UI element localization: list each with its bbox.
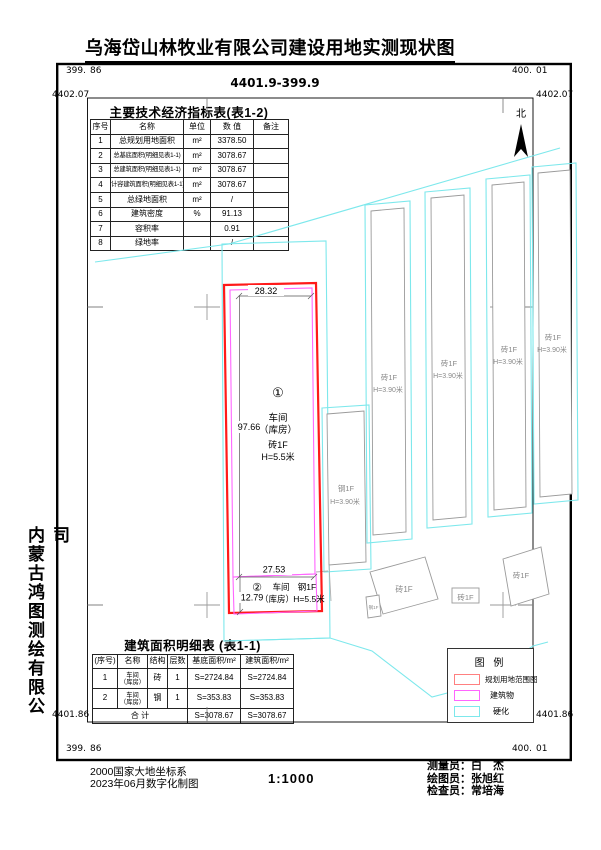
neighbor-strip4	[538, 170, 572, 497]
col-header: 备注	[254, 120, 289, 135]
checker-label: 检查员：	[427, 785, 471, 797]
dim-width-plot2: 27.53	[263, 565, 286, 575]
hardened-outline-strip3	[486, 175, 532, 517]
cell: 7	[91, 222, 111, 237]
cell: 总规划用地面积	[111, 134, 184, 149]
surveyor-row: 测量员：白 杰	[427, 760, 504, 773]
table-row: 1 总规划用地面积 m² 3378.50	[91, 134, 289, 149]
checker-row: 检查员：常培海	[427, 785, 504, 798]
cell: 总基底面积(明细见表1-1)	[111, 149, 184, 164]
legend-title: 图 例	[448, 654, 533, 669]
building-swatch-icon	[454, 690, 480, 701]
neighbor-steel-building	[327, 411, 366, 565]
coord-bottom-right-x-dec: 01	[536, 744, 547, 754]
cell: /	[211, 192, 254, 207]
boundary-swatch-icon	[454, 674, 480, 685]
cell	[254, 192, 289, 207]
col-header: (序号)	[93, 655, 118, 669]
cell: 91.13	[211, 207, 254, 222]
col-header: 建筑面积/m²	[241, 655, 294, 669]
coord-top-left-x-dec: 86	[90, 66, 101, 76]
cell: m²	[184, 149, 211, 164]
legend-item-building: 建筑物	[454, 690, 533, 701]
table-row: 8 绿地率 /	[91, 236, 289, 251]
cell: m²	[184, 134, 211, 149]
cell: S=2724.84	[241, 669, 294, 689]
digitized-line: 2023年06月数字化制图	[90, 778, 199, 790]
strip3-height: H=3.90米	[493, 357, 523, 366]
total-label: 合 计	[93, 709, 188, 724]
drafter-row: 绘图员：张旭红	[427, 773, 504, 786]
indicator-table: 序号 名称 单位 数 值 备注 1 总规划用地面积 m² 3378.50 2 总…	[90, 119, 289, 251]
col-header: 层数	[168, 655, 188, 669]
company-name: 内蒙古鸿图测绘有限公司	[22, 526, 72, 726]
cell: 3078.67	[211, 163, 254, 178]
cell	[184, 222, 211, 237]
col-header: 单位	[184, 120, 211, 135]
plot1-height: H=5.5米	[261, 451, 294, 462]
tiny-building-label: 钢1F	[369, 604, 379, 611]
coord-top-left-y: 4402.07	[52, 90, 86, 100]
mask	[232, 421, 267, 433]
legend-item-label: 规划用地范围图	[485, 674, 538, 685]
col-header: 名称	[118, 655, 148, 669]
building-name: 车间	[118, 672, 147, 679]
cell: 1	[168, 689, 188, 709]
col-header: 基底面积/m²	[188, 655, 241, 669]
cell: 3078.67	[211, 178, 254, 193]
plot2-name: 车间	[272, 582, 289, 592]
coord-bottom-right-y: 4401.86	[536, 710, 573, 720]
neighbor-small-box	[452, 588, 479, 603]
strip1-height: H=3.90米	[373, 385, 403, 394]
table-row: 合 计 S=3078.67 S=3078.67	[93, 709, 294, 724]
cell	[254, 134, 289, 149]
strip3-label: 砖1F	[501, 344, 518, 354]
table-row: 4 计容建筑面积(明细见表1-1) m² 3078.67	[91, 178, 289, 193]
cell: 砖	[148, 669, 168, 689]
cell: 3078.67	[211, 149, 254, 164]
dim-line-top	[236, 293, 314, 299]
cell: 容积率	[111, 222, 184, 237]
cell: 2	[93, 689, 118, 709]
cell: 钢	[148, 689, 168, 709]
staff-block: 测量员：白 杰 绘图员：张旭红 检查员：常培海	[427, 760, 504, 798]
neighbor-labels: 砖1F H=3.90米 砖1F H=3.90米 砖1F H=3.90米 砖1F …	[330, 332, 567, 611]
neighbor-buildings	[316, 170, 572, 618]
right-quad-label: 砖1F	[513, 570, 530, 580]
fence-lines	[316, 565, 331, 601]
mask	[235, 592, 270, 603]
sheet-number: 4401.9-399.9	[180, 76, 370, 90]
cell: S=353.83	[188, 689, 241, 709]
area-table-title: 建筑面积明细表 (表1-1)	[92, 635, 293, 654]
cell	[254, 222, 289, 237]
neighbor-square-building	[370, 557, 438, 614]
north-arrow-icon	[514, 124, 528, 157]
coord-bottom-left-x-int: 399.	[58, 744, 86, 754]
dim-height-plot1: 97.66	[238, 422, 261, 432]
plot2-name2: （库房）	[260, 594, 294, 604]
cell	[254, 207, 289, 222]
cell: m²	[184, 192, 211, 207]
square-label: 砖1F	[395, 584, 412, 594]
cell: 车间 （库房）	[118, 669, 148, 689]
building-name2: （库房）	[118, 699, 147, 706]
dimension-lines	[236, 293, 317, 615]
neighbor-right-building	[503, 547, 549, 606]
hardened-outline-strip1	[365, 201, 412, 543]
hardened-outline-steel	[322, 405, 371, 572]
table-row: 6 建筑密度 % 91.13	[91, 207, 289, 222]
dim-height-plot2: 12.79	[241, 593, 264, 603]
coord-top-right-y: 4402.07	[536, 90, 573, 100]
cell: 绿地率	[111, 236, 184, 251]
neighbor-strip2	[431, 195, 466, 520]
total-floor-area: S=3078.67	[241, 709, 294, 724]
north-label: 北	[516, 108, 526, 120]
coord-top-left-x-int: 399.	[58, 66, 86, 76]
building-name2: （库房）	[118, 679, 147, 686]
table-row: 1 车间 （库房） 砖 1 S=2724.84 S=2724.84	[93, 669, 294, 689]
plot2-height: H=5.5米	[293, 594, 325, 604]
cell: 4	[91, 178, 111, 193]
planning-boundary	[224, 283, 322, 613]
coord-bottom-left-x-dec: 86	[90, 744, 101, 754]
cell: 6	[91, 207, 111, 222]
coord-top-right-x-int: 400.	[505, 66, 532, 76]
dimension-text-masks	[232, 285, 292, 603]
strip4-label: 砖1F	[545, 332, 562, 342]
plot1-name: 车间	[268, 412, 287, 424]
hardened-swatch-icon	[454, 706, 480, 717]
cell	[254, 178, 289, 193]
table-row: (序号) 名称 结构 层数 基底面积/m² 建筑面积/m²	[93, 655, 294, 669]
cell: 1	[91, 134, 111, 149]
cell	[254, 149, 289, 164]
legend-item-label: 建筑物	[490, 690, 514, 701]
survey-map-sheet: 乌海岱山林牧业有限公司建设用地实测现状图 4401.9-399.9 399. 8…	[0, 0, 601, 850]
plot1-name2: （库房）	[259, 424, 297, 436]
table-row: 序号 名称 单位 数 值 备注	[91, 120, 289, 135]
coord-top-right-x-dec: 01	[536, 66, 547, 76]
table-row: 5 总绿地面积 m² /	[91, 192, 289, 207]
total-base-area: S=3078.67	[188, 709, 241, 724]
cell: 3	[91, 163, 111, 178]
building-name: 车间	[118, 692, 147, 699]
dim-line-plot2-left	[237, 577, 243, 615]
cell: m²	[184, 178, 211, 193]
hardened-outline-around-plot	[222, 241, 330, 641]
mask	[256, 564, 292, 575]
col-header: 结构	[148, 655, 168, 669]
table-row: 3 总建筑面积(明细见表1-1) m² 3078.67	[91, 163, 289, 178]
cell: S=353.83	[241, 689, 294, 709]
cell: 总建筑面积(明细见表1-1)	[111, 163, 184, 178]
table-row: 7 容积率 0.91	[91, 222, 289, 237]
cell: 车间 （库房）	[118, 689, 148, 709]
strip2-height: H=3.90米	[433, 371, 463, 380]
checker-name: 常培海	[471, 785, 504, 797]
surveyor-label: 测量员：	[427, 760, 471, 772]
cell: 3378.50	[211, 134, 254, 149]
plot1-building-outline	[230, 288, 315, 577]
cell: /	[211, 236, 254, 251]
cell	[254, 236, 289, 251]
cell	[184, 236, 211, 251]
cell: 8	[91, 236, 111, 251]
plot2-building-outline	[233, 574, 317, 614]
steel-height: H=3.90米	[330, 497, 360, 506]
cell: 1	[168, 669, 188, 689]
col-header: 数 值	[211, 120, 254, 135]
cell: S=2724.84	[188, 669, 241, 689]
dim-width-plot1: 28.32	[255, 286, 278, 296]
table-row: 2 总基底面积(明细见表1-1) m² 3078.67	[91, 149, 289, 164]
neighbor-strip3	[492, 182, 526, 510]
cell: 0.91	[211, 222, 254, 237]
coordinate-system-note: 2000国家大地坐标系 2023年06月数字化制图	[90, 766, 199, 790]
table-row: 2 车间 （库房） 钢 1 S=353.83 S=353.83	[93, 689, 294, 709]
strip2-label: 砖1F	[441, 358, 458, 368]
cell	[254, 163, 289, 178]
col-header: 名称	[111, 120, 184, 135]
plot2-structure: 钢1F	[298, 582, 316, 592]
area-table: (序号) 名称 结构 层数 基底面积/m² 建筑面积/m² 1 车间 （库房） …	[92, 654, 294, 724]
small-box-label: 砖1F	[457, 592, 474, 602]
drafter-name: 张旭红	[471, 773, 504, 785]
datum-line: 2000国家大地坐标系	[90, 766, 199, 778]
cell: 计容建筑面积(明细见表1-1)	[111, 178, 184, 193]
plot-labels: 28.32 97.66 27.53 12.79 ① 车间 （库房） 砖1F H=…	[238, 286, 325, 604]
grid-crosses	[194, 294, 516, 618]
map-scale: 1:1000	[268, 771, 314, 786]
hardened-outline-strip2	[425, 188, 472, 528]
plot1-structure: 砖1F	[268, 439, 288, 450]
page-title-text: 乌海岱山林牧业有限公司建设用地实测现状图	[85, 34, 455, 63]
cell: 2	[91, 149, 111, 164]
hardened-outline-strip4	[532, 163, 578, 504]
surveyor-name: 白 杰	[471, 760, 504, 772]
page-title: 乌海岱山林牧业有限公司建设用地实测现状图	[40, 34, 500, 63]
mask	[248, 285, 284, 296]
cell: 5	[91, 192, 111, 207]
legend-item-boundary: 规划用地范围图	[454, 674, 533, 685]
cell: 建筑密度	[111, 207, 184, 222]
steel-label: 钢1F	[338, 483, 355, 493]
col-header: 序号	[91, 120, 111, 135]
neighbor-strip1	[371, 208, 406, 535]
dim-line-plot2-top	[236, 574, 317, 580]
strip1-label: 砖1F	[381, 372, 398, 382]
cell: 1	[93, 669, 118, 689]
cell: %	[184, 207, 211, 222]
drafter-label: 绘图员：	[427, 773, 471, 785]
legend-item-label: 硬化	[493, 706, 509, 717]
legend-item-hardened: 硬化	[454, 706, 533, 717]
coord-bottom-right-x-int: 400.	[505, 744, 532, 754]
strip4-height: H=3.90米	[537, 345, 567, 354]
plot2-number: ②	[252, 582, 262, 594]
legend: 图 例 规划用地范围图 建筑物 硬化	[447, 648, 534, 723]
cell: m²	[184, 163, 211, 178]
plot1-number: ①	[272, 385, 284, 400]
neighbor-tiny-building	[366, 595, 381, 618]
cell: 总绿地面积	[111, 192, 184, 207]
